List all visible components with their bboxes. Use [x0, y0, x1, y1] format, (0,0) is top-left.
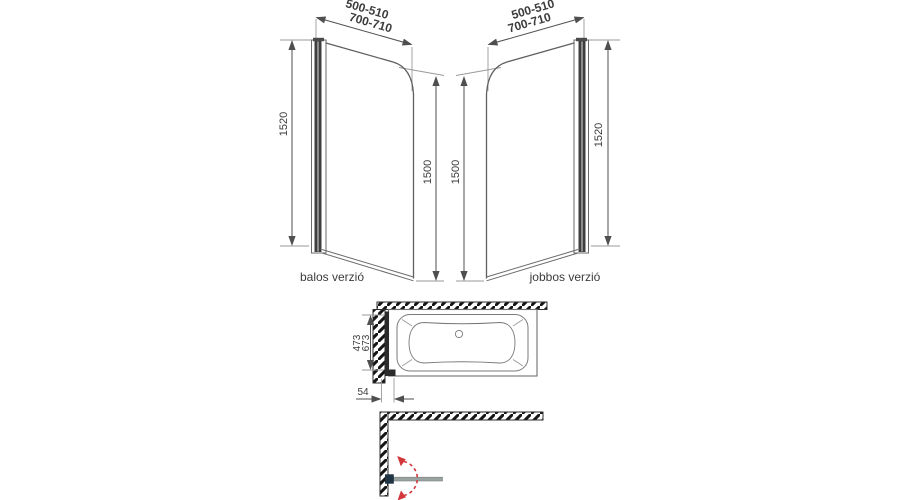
extension-line	[399, 68, 444, 76]
bathtub-plan-swing-view	[380, 412, 543, 500]
screen-profile-foot	[385, 370, 396, 377]
bathtub-top-view: 473 673 54	[352, 302, 547, 403]
drain-icon	[455, 330, 462, 337]
glass-height-label-right: 1500	[450, 160, 462, 184]
glass-panel-right	[487, 43, 575, 278]
wall-top-hatched	[377, 302, 547, 310]
hinge-cap-right	[576, 38, 587, 41]
left-version-caption: balos verzió	[300, 270, 364, 284]
bathtub-floor	[409, 323, 515, 364]
left-panel-view: 500-510 700-710 1520 1500 balos verzió	[278, 0, 444, 284]
frame-height-label-right: 1520	[593, 123, 605, 147]
glass-height-label-left: 1500	[422, 160, 434, 184]
wall-left-hatched	[373, 310, 385, 384]
depth-label-673: 673	[361, 334, 372, 351]
diagram-canvas: 500-510 700-710 1520 1500 balos verzió 5…	[0, 0, 900, 500]
screen-profile-top-view	[385, 312, 390, 372]
right-panel-view: 500-510 700-710 1520 1500 jobbos verzió	[450, 0, 620, 284]
hinge-cap-left	[313, 38, 324, 41]
wall-offset-label: 54	[357, 387, 369, 398]
frame-height-label-left: 1520	[278, 112, 290, 136]
hinge-block-plan	[385, 474, 394, 483]
bath-screen-technical-drawing: 500-510 700-710 1520 1500 balos verzió 5…	[0, 0, 900, 500]
right-version-caption: jobbos verzió	[529, 270, 601, 284]
glass-panel-left	[326, 43, 414, 278]
wall-top-hatched	[380, 412, 543, 420]
extension-line	[456, 68, 501, 76]
